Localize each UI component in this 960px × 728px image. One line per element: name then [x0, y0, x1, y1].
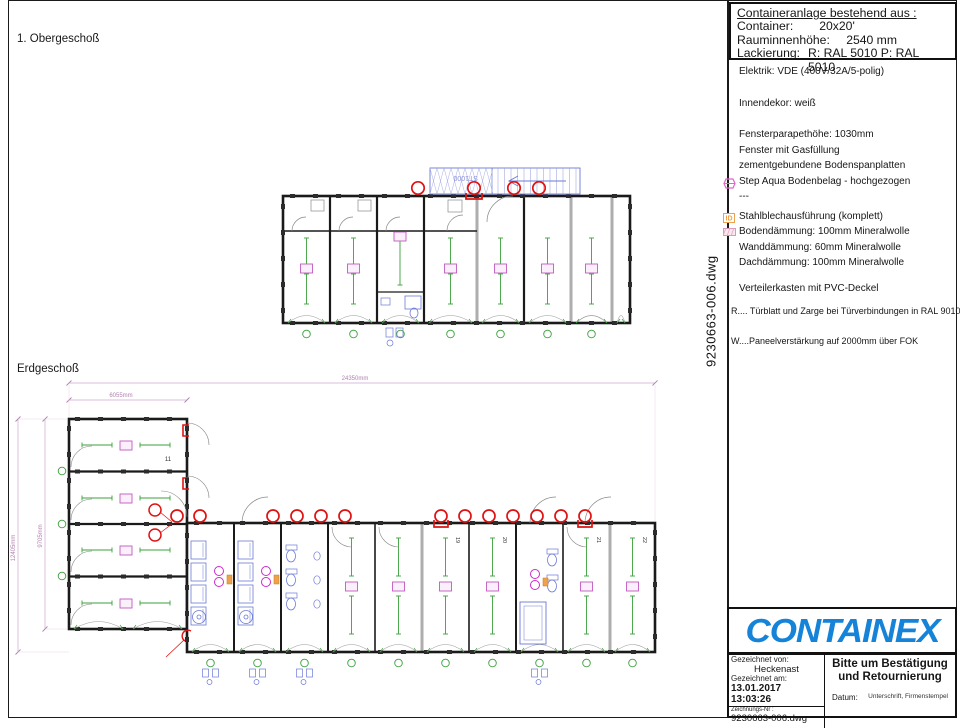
- spec-line: Innendekor: weiß: [739, 98, 953, 114]
- spec-line: ---: [739, 191, 953, 207]
- date-signature-row: Datum: Unterschrift, Firmenstempel: [825, 693, 955, 702]
- title-block-row: Container: 20x20': [737, 20, 949, 33]
- spec-text: Verteilerkasten mit PVC-Deckel: [739, 283, 879, 294]
- request-line-1: Bitte um Bestätigung: [825, 658, 955, 671]
- signature-label: Unterschrift, Firmenstempel: [868, 693, 948, 702]
- footer-info-block: Gezeichnet von: Heckenast Gezeichnet am:…: [727, 653, 957, 718]
- plan-text: 11: [165, 457, 172, 463]
- containex-logo: CONTAINEX: [745, 612, 939, 650]
- drawing-number-cell: Zeichnungs-Nr : 9230663-006.dwg: [729, 707, 825, 728]
- title-block-row: Rauminnenhöhe: 2540 mm: [737, 34, 949, 47]
- row-label: Rauminnenhöhe:: [737, 34, 830, 47]
- insulation-icon: [723, 228, 737, 239]
- note-panel-reinforcement: W....Paneelverstärkung auf 2000mm über F…: [731, 336, 957, 346]
- upper-floor-plan: [281, 194, 632, 346]
- spec-text: Fensterparapethöhe: 1030mm: [739, 129, 874, 140]
- spec-list: Elektrik: VDE (400V/32A/5-polig)Innendek…: [739, 66, 953, 298]
- row-value: 2540 mm: [846, 34, 897, 47]
- spec-line: Fensterparapethöhe: 1030mm: [739, 129, 953, 145]
- spec-line: Fenster mit Gasfüllung: [739, 145, 953, 161]
- confirmation-cell: Bitte um Bestätigung und Retournierung D…: [825, 655, 955, 728]
- drawn-by-cell: Gezeichnet von: Heckenast Gezeichnet am:…: [729, 655, 825, 707]
- spec-line: Dachdämmung: 100mm Mineralwolle: [739, 257, 953, 273]
- date-label: Datum:: [832, 693, 858, 702]
- title-block-header: Containeranlage bestehend aus :: [737, 7, 949, 20]
- plan-text: 22: [641, 537, 647, 543]
- spec-text: Wanddämmung: 60mm Mineralwolle: [739, 242, 901, 253]
- spec-line: IDStahlblechausführung (komplett): [739, 211, 953, 227]
- note-door-ral: R.... Türblatt und Zarge bei Türverbindu…: [731, 306, 957, 316]
- id-icon: ID: [723, 213, 737, 224]
- plan-text: ST1000: [453, 174, 478, 181]
- spec-line: Bodendämmung: 100mm Mineralwolle: [739, 226, 953, 242]
- row-label: Container:: [737, 20, 793, 33]
- ground-floor-main-block: 19202122: [161, 491, 657, 685]
- spec-text: Stahlblechausführung (komplett): [739, 211, 883, 222]
- spec-line: Step Aqua Bodenbelag - hochgezogen: [739, 176, 953, 192]
- plan-text: 6055mm: [109, 393, 132, 399]
- step-aqua-icon: [723, 178, 737, 189]
- drawing-no-value: 9230663-006.dwg: [731, 714, 822, 724]
- drawn-at-value: 13.01.2017 13:03:26: [731, 683, 822, 705]
- spec-text: Bodendämmung: 100mm Mineralwolle: [739, 226, 910, 237]
- spec-text: ---: [739, 191, 749, 202]
- spec-text: Elektrik: VDE (400V/32A/5-polig): [739, 66, 884, 77]
- row-value: 20x20': [819, 20, 855, 33]
- title-block: Containeranlage bestehend aus : Containe…: [729, 2, 957, 60]
- request-line-2: und Retournierung: [825, 671, 955, 684]
- plan-text: 21: [595, 537, 601, 543]
- spec-text: Step Aqua Bodenbelag - hochgezogen: [739, 176, 910, 187]
- plan-text: 20: [501, 537, 507, 543]
- spec-line: Wanddämmung: 60mm Mineralwolle: [739, 242, 953, 258]
- spec-text: Fenster mit Gasfüllung: [739, 145, 840, 156]
- drawing-file-vertical-label: 9230663-006.dwg: [699, 242, 723, 380]
- plan-text: 19: [454, 537, 460, 543]
- spec-text: Innendekor: weiß: [739, 98, 816, 109]
- spec-line: Verteilerkasten mit PVC-Deckel: [739, 283, 953, 299]
- staircase-symbol: ST1000: [430, 168, 580, 194]
- plan-text: 9705mm: [38, 524, 44, 547]
- spec-line: Elektrik: VDE (400V/32A/5-polig): [739, 66, 953, 82]
- floor-plan-canvas: ST1000111920212224350mm6055mm12405mm9705…: [0, 0, 730, 720]
- plan-text: 12405mm: [11, 535, 17, 562]
- logo-box: CONTAINEX: [727, 607, 957, 654]
- spec-text: zementgebundene Bodenspanplatten: [739, 160, 905, 171]
- spec-text: Dachdämmung: 100mm Mineralwolle: [739, 257, 904, 268]
- plan-text: 24350mm: [342, 376, 369, 382]
- spec-line: zementgebundene Bodenspanplatten: [739, 160, 953, 176]
- svg-text:ID: ID: [726, 215, 733, 222]
- drawn-by-value: Heckenast: [731, 665, 822, 675]
- drawn-at-label: Gezeichnet am:: [731, 675, 822, 684]
